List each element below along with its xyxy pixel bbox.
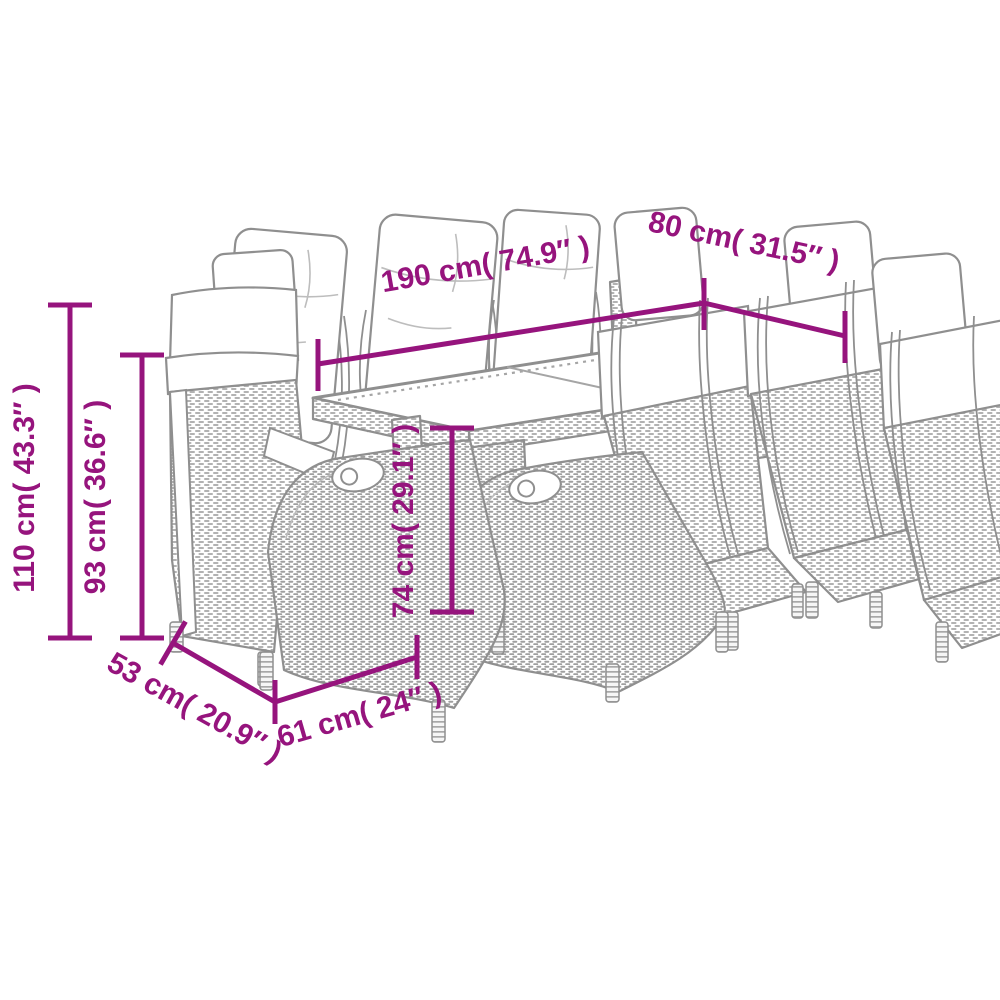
product-illustration: 190 cm( 74.9″ ) 80 cm( 31.5″ ) 110 cm( 4… (0, 0, 1000, 1000)
product-dimension-diagram: 190 cm( 74.9″ ) 80 cm( 31.5″ ) 110 cm( 4… (0, 0, 1000, 1000)
dimension-label-table-height: 74 cm( 29.1″ ) (387, 424, 420, 618)
chair-right-3 (871, 252, 1000, 662)
dimension-backrest-height: 93 cm( 36.6″ ) (79, 355, 164, 638)
dimension-label-backrest-height: 93 cm( 36.6″ ) (79, 400, 112, 594)
dimension-label-total-height: 110 cm( 43.3″ ) (8, 383, 41, 593)
